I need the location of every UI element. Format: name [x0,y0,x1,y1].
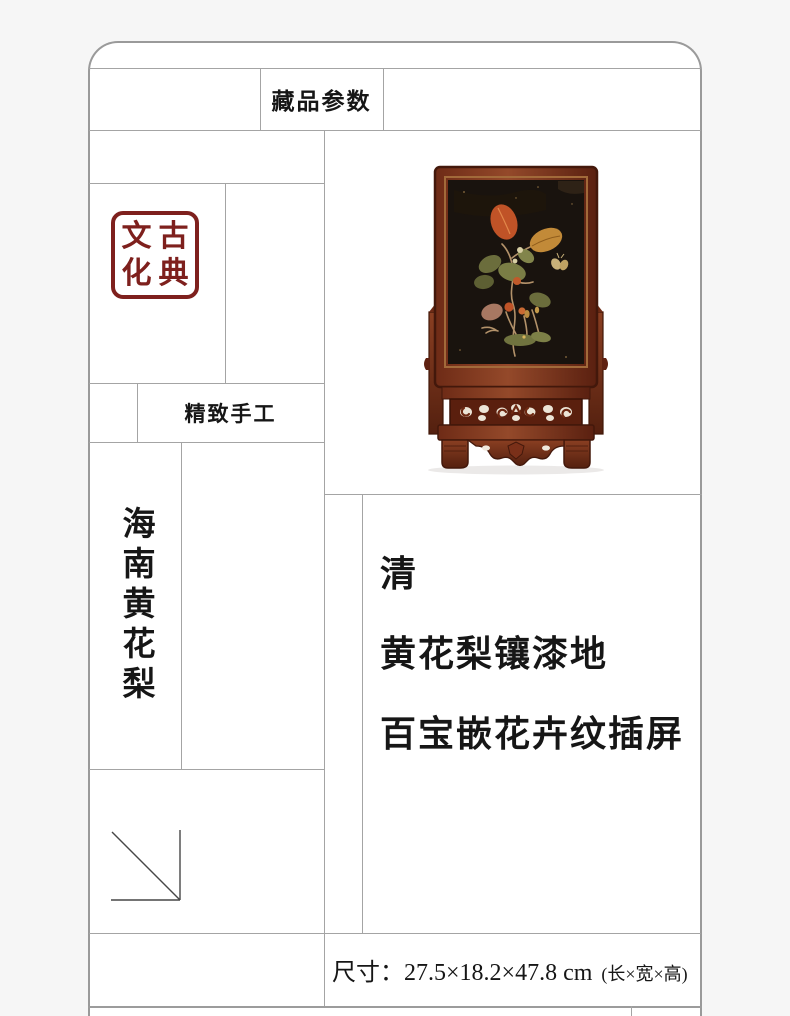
diagonal-arrow-icon [106,826,188,908]
item-name-line: 百宝嵌花卉纹插屏 [380,694,700,774]
divider-line [383,68,384,130]
divider-line [89,769,325,770]
dimensions-row: 尺寸：27.5×18.2×47.8 cm (长×宽×高) [324,933,702,1006]
divider-line [324,494,702,495]
seal-char: 典 [155,255,192,292]
divider-line [324,130,325,1006]
divider-line [89,68,701,69]
divider-line [89,183,325,184]
divider-line [89,130,701,131]
seal-char: 化 [118,255,155,292]
page-title: 藏品参数 [260,68,383,130]
material-label: 海南黄花梨 [111,506,159,706]
product-photo-table-screen [420,160,612,476]
dimensions-note: (长×宽×高) [601,964,687,984]
seal-char: 文 [118,218,155,255]
dimensions-text: 尺寸：27.5×18.2×47.8 cm [332,960,592,986]
material-line: 黄花梨镶漆地 [380,614,700,694]
dynasty-text: 清 [380,534,700,614]
divider-line [225,183,226,383]
craft-label: 精致手工 [137,383,324,442]
divider-line [631,1006,632,1016]
divider-line [362,494,363,933]
spec-sheet: 藏品参数 文 古 化 典 精致手工 海南黄花梨 [0,0,790,1016]
divider-line-thick [88,1006,702,1008]
material-label-cell: 海南黄花梨 [89,442,181,769]
classic-culture-seal: 文 古 化 典 [111,211,199,299]
seal-char: 古 [155,218,192,255]
divider-line [181,442,182,769]
description-block: 清 黄花梨镶漆地 百宝嵌花卉纹插屏 [380,534,700,774]
